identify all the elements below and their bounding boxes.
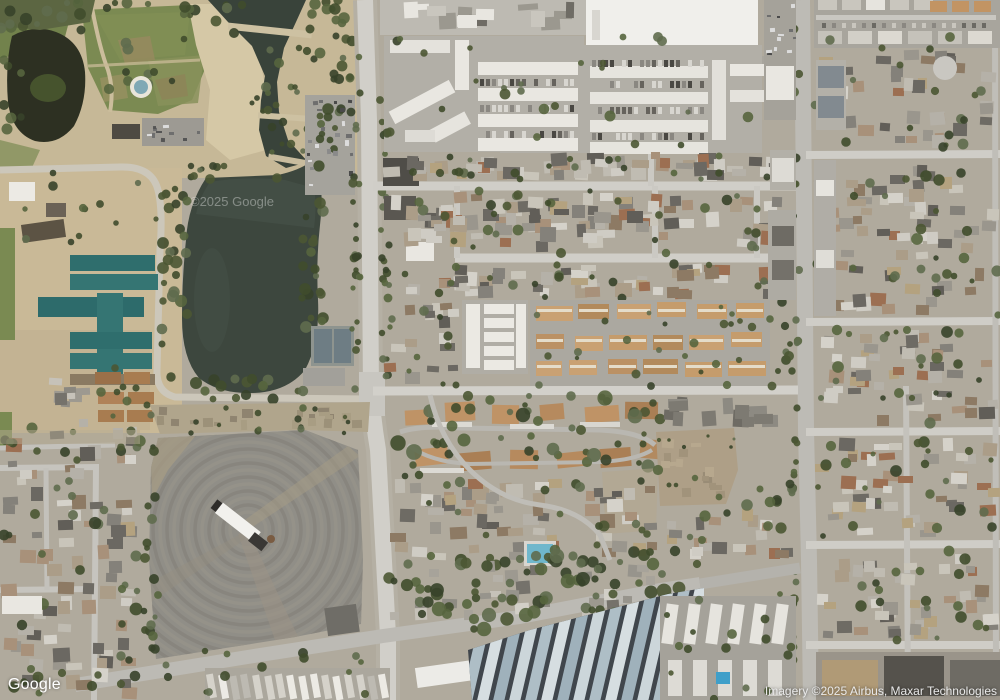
svg-text:©2025 Google: ©2025 Google	[190, 194, 274, 209]
